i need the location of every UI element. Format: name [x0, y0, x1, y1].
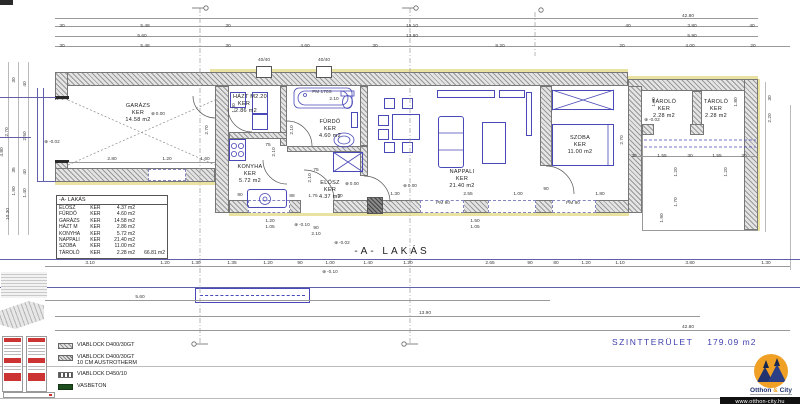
wall-pier [642, 124, 654, 135]
dimension-label: 1.55 [712, 154, 721, 159]
dimension-label: 2.70 [5, 127, 10, 136]
room-label: KER [658, 106, 670, 112]
wall-segment-top-right [628, 79, 758, 91]
level-marker: -0.02 [44, 140, 59, 145]
dimension-label: 40 [625, 24, 630, 29]
dimension-label: 1.20 [160, 261, 169, 266]
dimension-label: 1.20 [674, 167, 679, 176]
plan-title: -A- LAKÁS [354, 247, 429, 257]
chimney-block [256, 66, 272, 78]
dimension-label: PM 90 [436, 201, 450, 206]
dimension-label: 1.20 [724, 167, 729, 176]
floor-area-summary: SZINTTERÜLET179.09 m2 [612, 337, 756, 347]
hall-wardrobe [333, 152, 363, 172]
site-line [37, 88, 38, 182]
room-label: KER [238, 101, 250, 107]
dimension-label: 1.80 [595, 192, 604, 197]
dimension-label: 30 [59, 44, 64, 49]
legend-swatch-dash [58, 372, 73, 378]
room-label: TÁROLÓ [704, 99, 728, 105]
dimension-label: 2.50 [23, 131, 28, 140]
dimension-line [55, 46, 790, 47]
dimension-line [28, 62, 29, 235]
dimension-label: 1.55 [657, 154, 666, 159]
dimension-label: 30 [372, 44, 377, 49]
dimension-label: 1.35 [227, 261, 236, 266]
wall-segment-right-main [628, 86, 642, 213]
dimension-label: 3.10 [85, 261, 94, 266]
dimension-label: 1.80 [652, 97, 657, 106]
dimension-label: 75 [265, 143, 270, 148]
legend-item: VIABLOCK D400/30GT10 CM AUSTROTHERM [58, 354, 228, 366]
dimension-label: 40 [23, 169, 28, 174]
room-label: KER [574, 142, 586, 148]
stamp-card [2, 336, 23, 392]
dimension-line [632, 156, 758, 157]
room-label: HÁZT M2.20 [233, 94, 267, 100]
level-marker: -0.02 [644, 118, 659, 123]
level-marker: -0.02 [334, 241, 349, 246]
room-label: KER [244, 171, 256, 177]
dimension-label: 40 [749, 24, 754, 29]
dimension-label: 1.30 [191, 261, 200, 266]
dining-table [392, 114, 420, 140]
section-reference-line [0, 259, 800, 260]
legend-item: VIABLOCK D400/30GT [58, 342, 228, 349]
dimension-label: 2.80 [107, 157, 116, 162]
dimension-label: 35 [12, 167, 17, 172]
area-table: -A- LAKÁS ELŐSZKER4.37 m2FÜRDŐKER4.60 m2… [56, 195, 168, 259]
dimension-label: 1.20 [403, 261, 412, 266]
dimension-label: 20 [619, 44, 624, 49]
summary-label: SZINTTERÜLET [612, 337, 693, 347]
insulation-strip [55, 182, 215, 185]
dimension-label: 13.90 [419, 311, 431, 316]
sideboard [499, 90, 525, 98]
room-label: KER [132, 110, 144, 116]
dimension-label: 90 [313, 226, 318, 231]
dimension-label: 5.48 [140, 24, 149, 29]
dimension-line [68, 162, 215, 163]
logo-name-part: Otthon [750, 387, 771, 394]
dimension-label: 1.60 [200, 157, 209, 162]
room-label: KONYHA [238, 164, 263, 170]
dimension-line [790, 105, 791, 270]
vasbeton-pillar [368, 198, 382, 213]
dimension-label: 1.05 [265, 225, 274, 230]
sofa [438, 116, 464, 168]
dimension-label: 30 [59, 24, 64, 29]
dimension-label: 8.20 [495, 44, 504, 49]
room-label: 14.58 m2 [125, 117, 150, 123]
chair [402, 98, 413, 109]
room-label: 5.72 m2 [239, 178, 261, 184]
dimension-label: 2.10 [308, 173, 313, 182]
dimension-label: 3.80 [685, 261, 694, 266]
sideboard [437, 90, 495, 98]
dimension-label: 1.20 [581, 261, 590, 266]
porch-edge [642, 135, 643, 230]
dimension-line [55, 18, 758, 19]
dimension-label: 30 [225, 24, 230, 29]
legend-swatch-hatch2 [58, 355, 73, 361]
dimension-label: 30 [12, 77, 17, 82]
room-label: FÜRDŐ [319, 119, 340, 125]
dimension-label: 2.70 [205, 125, 210, 134]
logo-circle-icon [754, 354, 788, 388]
page-corner-mark [0, 0, 13, 5]
legend-item: VASBETON [58, 383, 228, 390]
dimension-line [765, 82, 766, 232]
dimension-label: 2.10 [329, 97, 338, 102]
room-label: 21.40 m2 [449, 183, 474, 189]
room-label: ELŐSZ [320, 180, 339, 186]
dimension-label: 90 [527, 261, 532, 266]
dimension-line [55, 316, 700, 317]
wall-segment-garage-bottom [55, 168, 215, 182]
dimension-label: 1.05 [470, 225, 479, 230]
dimension-label: 2.20 [768, 113, 773, 122]
room-label: 2.28 m2 [705, 113, 727, 119]
dimension-label: 50 [337, 194, 342, 199]
dimension-label: 1.30 [232, 103, 237, 112]
dimension-label: 30 [741, 154, 746, 159]
room-label: 2.86 m2 [235, 108, 257, 114]
dimension-label: 4.80 [0, 147, 4, 156]
site-line [0, 97, 56, 98]
porch-edge [642, 230, 758, 231]
logo-name-part: City [780, 387, 792, 394]
dimension-label: 5.60 [135, 295, 144, 300]
chair [378, 115, 389, 126]
dimension-label: 2.65 [485, 261, 494, 266]
dimension-label: 90 [543, 187, 548, 192]
dimension-label: 3.80 [687, 24, 696, 29]
section-reference-line [0, 287, 800, 288]
dimension-label: 1.70 [674, 197, 679, 206]
wall-segment-top [55, 72, 628, 86]
dimension-label: 4.00 [685, 44, 694, 49]
stamp-card [26, 336, 47, 392]
dimension-line [45, 266, 790, 267]
door-jamb-mark [55, 160, 69, 163]
stamp-bar [3, 392, 55, 398]
area-table-header: -A- LAKÁS [57, 196, 167, 205]
dimension-label: 42.80 [682, 14, 694, 19]
logo-url: www.otthon-city.hu [720, 397, 800, 404]
chimney-block [316, 66, 332, 78]
level-marker: 0.00 [403, 184, 417, 189]
logo-name: Otthon & City [742, 387, 800, 394]
room-label: SZOBA [570, 135, 590, 141]
radiator [351, 112, 358, 128]
dimension-line [18, 62, 19, 235]
room-label: KER [324, 126, 336, 132]
dimension-label: 4.60 [300, 44, 309, 49]
radiator [526, 92, 532, 136]
dimension-label: 30 [687, 154, 692, 159]
legend-swatch-green [58, 384, 73, 390]
cabinet [252, 114, 268, 130]
dimension-label: 40 [23, 81, 28, 86]
dimension-label: 1.10 [615, 261, 624, 266]
dimension-label: 1.90 [12, 186, 17, 195]
dimension-label: 40/40 [318, 58, 330, 63]
wall-partition-garage [215, 86, 229, 213]
dimension-label: 75 [313, 168, 318, 173]
page-bottom-line [0, 398, 800, 399]
dimension-line [45, 300, 550, 301]
area-table-row: FÜRDŐKER4.60 m2 [57, 211, 137, 217]
area-table-total: 66.81 m2 [144, 250, 165, 256]
dimension-label: 5.60 [137, 34, 146, 39]
wardrobe [552, 90, 614, 110]
coffee-table [482, 122, 506, 164]
dimension-label: 1.30 [761, 261, 770, 266]
dimension-label: 1.40 [363, 261, 372, 266]
dimension-label: 2.10 [272, 147, 277, 156]
chair [384, 98, 395, 109]
garage-rear-door [148, 169, 186, 181]
dimension-label: 80 [553, 261, 558, 266]
dimension-label: FM 170S [312, 90, 331, 95]
dimension-label: 20 [750, 44, 755, 49]
note-block [1, 272, 47, 298]
site-line [37, 181, 56, 182]
dimension-label: 30 [631, 154, 636, 159]
area-table-row: SZOBAKER11.00 m2 [57, 243, 137, 249]
dimension-label: 2.70 [620, 135, 625, 144]
dimension-label: 1.20 [265, 219, 274, 224]
dimension-label: 2.10 [290, 125, 295, 134]
wall-pier [690, 124, 704, 135]
dimension-label: 1.30 [390, 192, 399, 197]
dimension-label: 30 [225, 44, 230, 49]
materials-legend: VIABLOCK D400/30GTVIABLOCK D400/30GT10 C… [58, 342, 228, 390]
dimension-label: 5.48 [140, 44, 149, 49]
block-isometric-thumbnail [0, 301, 44, 329]
room-label: 4.60 m2 [319, 133, 341, 139]
dimension-label: 1.00 [513, 192, 522, 197]
wall-partition-szoba [540, 86, 552, 166]
summary-value: 179.09 m2 [707, 337, 756, 347]
entry-door-opening [300, 200, 334, 213]
dimension-label: 1.75 [308, 194, 317, 199]
room-label: NAPPALI [450, 169, 475, 175]
wall-partition [229, 132, 287, 139]
stove [229, 139, 246, 161]
kitchen-counter [247, 189, 287, 208]
floorplan-page: 42.80305.483015.10403.80405.6013.805.903… [0, 0, 800, 404]
otthon-city-logo: Otthon & City www.otthon-city.hu [742, 354, 800, 400]
insulation-strip [229, 213, 629, 216]
dimension-label: 1.40 [23, 188, 28, 197]
dimension-label: 1.50 [470, 219, 479, 224]
dimension-label: 5.90 [687, 34, 696, 39]
dimension-label: 90 [237, 193, 242, 198]
dimension-label: 30 [768, 95, 773, 100]
level-marker: 0.00 [151, 112, 165, 117]
room-label: KER [710, 106, 722, 112]
room-label: 11.00 m2 [568, 149, 593, 155]
level-marker: -0.10 [322, 270, 337, 275]
area-table-row: TÁROLÓKER2.28 m2 [57, 250, 137, 256]
wall-partition [360, 86, 368, 146]
area-table-row: HÁZT MKER2.86 m2 [57, 224, 137, 230]
window [488, 200, 536, 213]
level-marker: -0.10 [294, 223, 309, 228]
garage-door-opening [55, 100, 68, 160]
logo-tagline-rule [750, 394, 792, 395]
legend-item: VIABLOCK D450/10 [58, 371, 228, 378]
dimension-label: 1.80 [734, 97, 739, 106]
dimension-label: 13.80 [406, 34, 418, 39]
room-label: GARÁZS [126, 103, 150, 109]
dimension-label: 88 [289, 194, 294, 199]
dimension-label: 10.30 [6, 208, 11, 220]
logo-ampersand: & [773, 387, 778, 394]
chair [384, 142, 395, 153]
chair [378, 129, 389, 140]
room-label: KER [456, 176, 468, 182]
dimension-label: 1.20 [263, 261, 272, 266]
dimension-label: 40/40 [258, 58, 270, 63]
legend-swatch-hatch [58, 343, 73, 349]
dimension-label: 90 [297, 261, 302, 266]
dimension-label: 42.80 [682, 325, 694, 330]
dimension-label: 1.90 [660, 213, 665, 222]
chair [402, 142, 413, 153]
level-marker: 0.00 [345, 182, 359, 187]
dimension-label: 1.00 [325, 261, 334, 266]
dimension-label: 1.20 [162, 157, 171, 162]
door-jamb-mark [55, 96, 69, 99]
dimension-label: 15.10 [406, 24, 418, 29]
dimension-label: 2.55 [463, 192, 472, 197]
room-label: KER [324, 187, 336, 193]
site-line [43, 88, 44, 182]
dimension-label: PM 90 [566, 201, 580, 206]
dimension-line [55, 330, 790, 331]
dimension-label: 2.10 [311, 232, 320, 237]
